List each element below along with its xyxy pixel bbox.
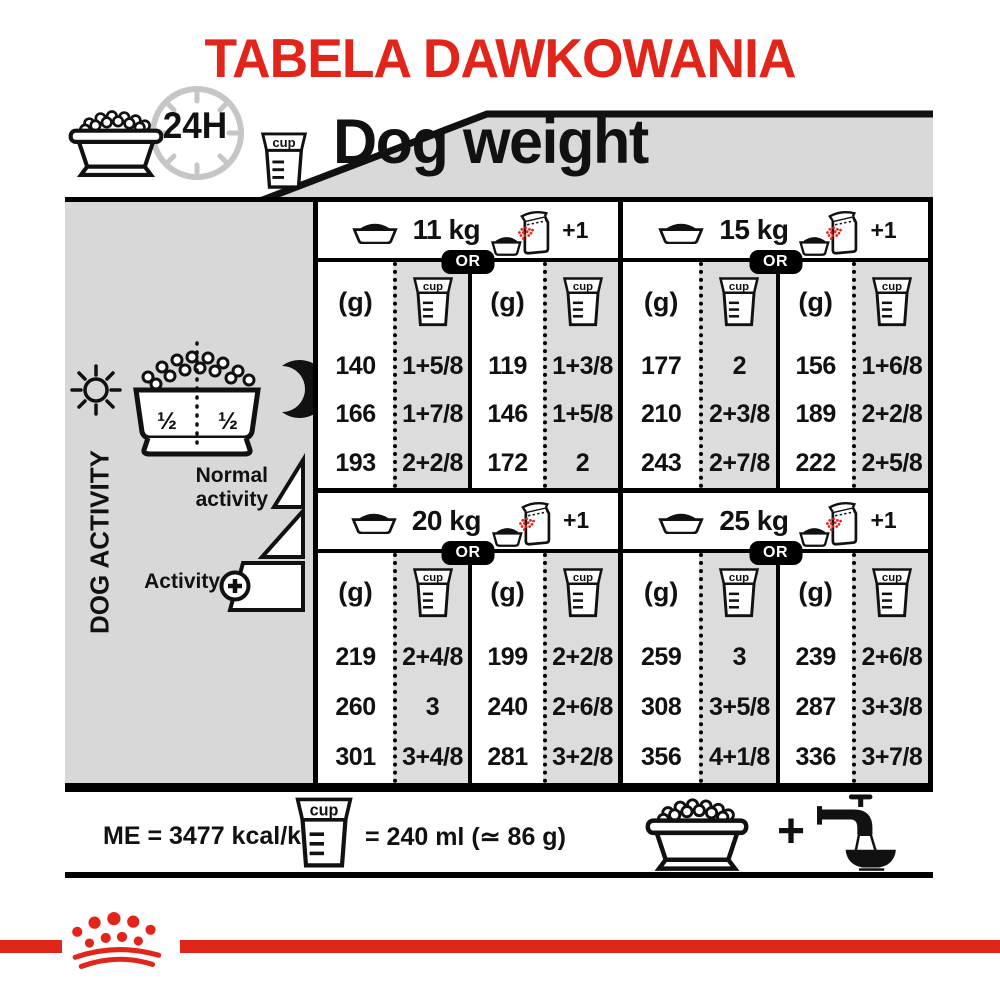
- plus-sign: +: [777, 804, 805, 859]
- brand-stripe-left: [0, 940, 62, 953]
- dose-value: 259: [623, 633, 699, 683]
- food-bowl-icon: [71, 112, 162, 175]
- dose-value: 3: [703, 633, 775, 683]
- dose-value: 308: [623, 683, 699, 733]
- plus-one-label: +1: [562, 217, 588, 244]
- dose-value: 287: [780, 683, 852, 733]
- water-faucet-icon: [817, 790, 901, 876]
- dose-value: 3+2/8: [547, 733, 618, 783]
- cups-column: 2+2/8 2+6/8 3+2/8: [543, 553, 618, 784]
- grams-column: (g) 140 166 193: [318, 262, 393, 488]
- cup-header: [703, 553, 775, 633]
- plus-one-label: +1: [563, 507, 589, 534]
- or-badge: OR: [749, 541, 802, 565]
- metabolizable-energy-label: ME = 3477 kcal/kg: [103, 822, 316, 851]
- dose-value: 119: [472, 342, 543, 391]
- cup-icon: [293, 797, 355, 869]
- feeding-table-page: cup: [0, 0, 1000, 1000]
- dose-value: 2+4/8: [397, 633, 468, 683]
- cup-header: [397, 553, 468, 633]
- dose-value: 222: [780, 439, 852, 488]
- dosage-grid: (g) 140 166 193 1+5/8 1+7/8 2+2/8 (g) 11…: [318, 262, 618, 488]
- dose-value: 177: [623, 342, 699, 391]
- dose-value: 1+5/8: [397, 342, 468, 391]
- cups-column: 2+4/8 3 3+4/8: [393, 553, 468, 784]
- grams-column: (g) 119 146 172: [468, 262, 543, 488]
- dose-value: 2+2/8: [547, 633, 618, 683]
- dosage-grid: (g) 259 308 356 3 3+5/8 4+1/8 (g) 239 28…: [623, 553, 928, 784]
- cup-icon: [718, 567, 760, 619]
- cup-icon: [871, 276, 913, 328]
- cups-column: 1+5/8 1+7/8 2+2/8: [393, 262, 468, 488]
- dosage-grid: (g) 219 260 301 2+4/8 3 3+4/8 (g) 199 24…: [318, 553, 618, 784]
- dose-value: 239: [780, 633, 852, 683]
- dose-value: 2+7/8: [703, 439, 775, 488]
- weight-header: 25 kg +1 OR: [623, 493, 928, 553]
- grams-column: (g) 259 308 356: [623, 553, 699, 784]
- cups-column: 2+6/8 3+3/8 3+7/8: [852, 553, 928, 784]
- food-bag-icon: [799, 501, 859, 549]
- cups-column: 1+6/8 2+2/8 2+5/8: [852, 262, 928, 488]
- cup-icon: [562, 567, 604, 619]
- sun-icon: [72, 366, 120, 414]
- grams-column: (g) 219 260 301: [318, 553, 393, 784]
- grams-header: (g): [472, 262, 543, 342]
- dog-weight-title: Dog weight: [333, 106, 648, 178]
- hours-label: 24H: [163, 105, 227, 147]
- half-bowl-icon: ½ ½: [136, 343, 258, 454]
- grams-column: (g) 177 210 243: [623, 262, 699, 488]
- or-badge: OR: [749, 250, 802, 274]
- dose-value: 2+3/8: [703, 391, 775, 440]
- dose-value: 1+5/8: [547, 391, 618, 440]
- grams-header: (g): [318, 553, 393, 633]
- moon-icon: [282, 360, 313, 418]
- cup-header: [703, 262, 775, 342]
- dose-value: 1+6/8: [856, 342, 928, 391]
- crown-logo: [63, 912, 177, 972]
- dose-value: 301: [318, 733, 393, 783]
- grams-column: (g) 239 287 336: [776, 553, 852, 784]
- cup-equivalence-label: = 240 ml (≃ 86 g): [365, 822, 566, 852]
- dose-value: 2+2/8: [856, 391, 928, 440]
- dog-activity-sidebar: ½ ½ DOG ACTIVITY Normal activity Activit…: [65, 197, 313, 788]
- dose-value: 4+1/8: [703, 733, 775, 783]
- dose-value: 172: [472, 439, 543, 488]
- dose-value: 2+5/8: [856, 439, 928, 488]
- cup-header: [856, 553, 928, 633]
- dose-value: 193: [318, 439, 393, 488]
- dosage-grid: (g) 177 210 243 2 2+3/8 2+7/8 (g) 156 18…: [623, 262, 928, 488]
- plus-one-label: +1: [870, 217, 896, 244]
- dose-value: 1+3/8: [547, 342, 618, 391]
- dog-activity-label: DOG ACTIVITY: [85, 450, 116, 634]
- dose-value: 3+4/8: [397, 733, 468, 783]
- dose-value: 356: [623, 733, 699, 783]
- cup-header: [547, 553, 618, 633]
- cup-header: [397, 262, 468, 342]
- weight-header: 15 kg +1 OR: [623, 202, 928, 262]
- activity-label: Activity: [115, 570, 220, 594]
- footer-legend: ME = 3477 kcal/kg = 240 ml (≃ 86 g) +: [65, 786, 933, 878]
- bowl-icon: [347, 507, 401, 534]
- grams-header: (g): [623, 553, 699, 633]
- dose-value: 2+6/8: [547, 683, 618, 733]
- food-bag-icon: [799, 210, 859, 258]
- weight-label: 15 kg: [719, 214, 788, 246]
- bowl-icon: [654, 217, 708, 244]
- weight-label: 25 kg: [719, 505, 788, 537]
- weight-section-11kg: 11 kg +1 OR (g) 140 166 193 1+5/8 1+7/8 …: [318, 202, 623, 493]
- grams-header: (g): [472, 553, 543, 633]
- cup-icon: [412, 567, 454, 619]
- grams-column: (g) 156 189 222: [776, 262, 852, 488]
- food-bag-icon: [491, 210, 551, 258]
- plus-one-label: +1: [870, 507, 896, 534]
- dose-value: 243: [623, 439, 699, 488]
- dose-value: 156: [780, 342, 852, 391]
- weight-section-25kg: 25 kg +1 OR (g) 259 308 356 3 3+5/8 4+1/…: [623, 493, 928, 784]
- dose-value: 2+6/8: [856, 633, 928, 683]
- cup-icon: [412, 276, 454, 328]
- dose-value: 3+7/8: [856, 733, 928, 783]
- dose-value: 281: [472, 733, 543, 783]
- dose-value: 219: [318, 633, 393, 683]
- cup-header: [856, 262, 928, 342]
- half-portion-right: ½: [218, 408, 238, 435]
- cup-icon: [263, 134, 306, 187]
- dose-value: 199: [472, 633, 543, 683]
- or-badge: OR: [442, 541, 495, 565]
- weight-header: 11 kg +1 OR: [318, 202, 618, 262]
- dosage-table: 11 kg +1 OR (g) 140 166 193 1+5/8 1+7/8 …: [313, 197, 933, 788]
- food-bag-icon: [492, 501, 552, 549]
- dose-value: 240: [472, 683, 543, 733]
- dose-value: 1+7/8: [397, 391, 468, 440]
- weight-section-20kg: 20 kg +1 OR (g) 219 260 301 2+4/8 3 3+4/…: [318, 493, 623, 784]
- weight-label: 20 kg: [412, 505, 481, 537]
- cup-icon: [562, 276, 604, 328]
- food-bowl-icon: [621, 796, 773, 872]
- dose-value: 166: [318, 391, 393, 440]
- dose-value: 260: [318, 683, 393, 733]
- cups-column: 1+3/8 1+5/8 2: [543, 262, 618, 488]
- dose-value: 2+2/8: [397, 439, 468, 488]
- dose-value: 140: [318, 342, 393, 391]
- or-badge: OR: [442, 250, 495, 274]
- normal-activity-label: Normal activity: [120, 464, 268, 512]
- grams-header: (g): [780, 262, 852, 342]
- dose-value: 2: [703, 342, 775, 391]
- cups-column: 3 3+5/8 4+1/8: [699, 553, 775, 784]
- dose-value: 146: [472, 391, 543, 440]
- dose-value: 3+5/8: [703, 683, 775, 733]
- bowl-icon: [348, 217, 402, 244]
- dose-value: 3: [397, 683, 468, 733]
- dose-value: 210: [623, 391, 699, 440]
- activity-triangle-small: [274, 460, 303, 507]
- grams-header: (g): [318, 262, 393, 342]
- weight-header: 20 kg +1 OR: [318, 493, 618, 553]
- dose-value: 3+3/8: [856, 683, 928, 733]
- grams-column: (g) 199 240 281: [468, 553, 543, 784]
- grams-header: (g): [623, 262, 699, 342]
- weight-label: 11 kg: [413, 214, 481, 246]
- cup-header: [547, 262, 618, 342]
- cup-icon: [718, 276, 760, 328]
- bowl-icon: [654, 507, 708, 534]
- weight-section-15kg: 15 kg +1 OR (g) 177 210 243 2 2+3/8 2+7/…: [623, 202, 928, 493]
- grams-header: (g): [780, 553, 852, 633]
- cup-icon: [871, 567, 913, 619]
- activity-triangle-medium: [262, 511, 303, 557]
- brand-stripe-right: [180, 940, 1000, 953]
- cups-column: 2 2+3/8 2+7/8: [699, 262, 775, 488]
- dose-value: 336: [780, 733, 852, 783]
- dose-value: 189: [780, 391, 852, 440]
- half-portion-left: ½: [157, 408, 177, 435]
- dose-value: 2: [547, 439, 618, 488]
